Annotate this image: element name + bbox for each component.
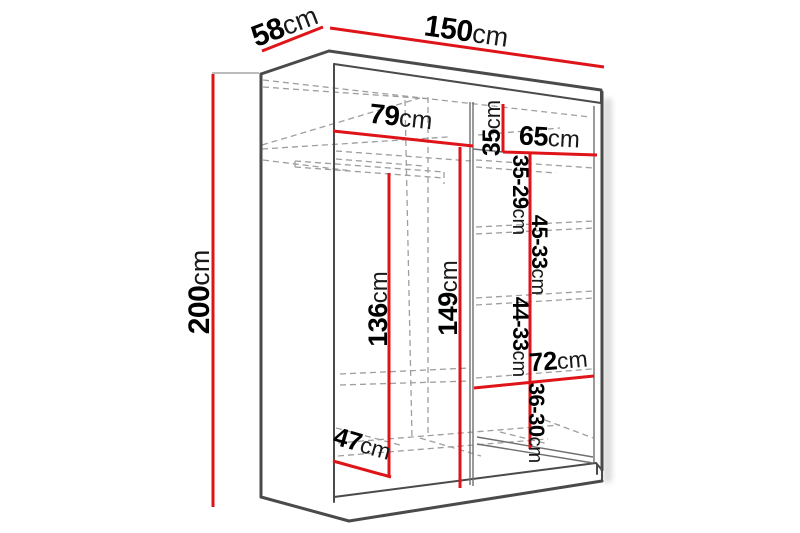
floor-depth-diagonal-2 (420, 438, 481, 456)
label-left-height: 149cm (433, 260, 463, 336)
hanging-rail-bottom (295, 167, 444, 178)
wardrobe-dimension-diagram: 200cm 58cm 150cm 79cm 35cm 65cm 136cm 14… (0, 0, 800, 533)
shelf-c-back (476, 298, 594, 305)
diagram-canvas: 200cm 58cm 150cm 79cm 35cm 65cm 136cm 14… (0, 0, 800, 533)
dim-line-left-width-79 (333, 131, 473, 146)
label-shelf-gap-4: 36-30cm (524, 383, 549, 463)
shelf-d-left-2 (340, 381, 470, 385)
shelf-a-back-1 (476, 160, 594, 168)
label-lower-shelf-width: 72cm (528, 343, 589, 378)
label-top-gap: 35cm (478, 100, 506, 156)
label-depth: 58cm (247, 0, 323, 54)
plinth-bottom-edge (349, 481, 602, 521)
side-hidden-line (262, 137, 448, 149)
dimension-labels: 200cm 58cm 150cm 79cm 35cm 65cm 136cm 14… (183, 0, 589, 466)
floor-front-edge (334, 463, 596, 497)
label-left-width: 79cm (368, 98, 434, 135)
label-floor-depth: 47cm (330, 421, 395, 466)
side-top-edge (261, 51, 329, 74)
label-shelf-gap-2: 45-33cm (527, 215, 552, 295)
label-height: 200cm (183, 250, 216, 335)
wardrobe-shadow (603, 98, 612, 483)
shelf-d-left-1 (340, 368, 470, 374)
side-bottom-edge (261, 497, 349, 521)
label-hanging-height: 136cm (363, 271, 393, 347)
interior-back-vertical (405, 100, 412, 438)
top-panel-front-edge (329, 51, 601, 90)
floor-corner-diagonal (545, 420, 593, 438)
top-shelf-back-edge (336, 151, 471, 161)
label-right-width: 65cm (518, 120, 581, 153)
label-width: 150cm (422, 9, 510, 53)
ceiling-back-edge-2 (263, 87, 432, 99)
